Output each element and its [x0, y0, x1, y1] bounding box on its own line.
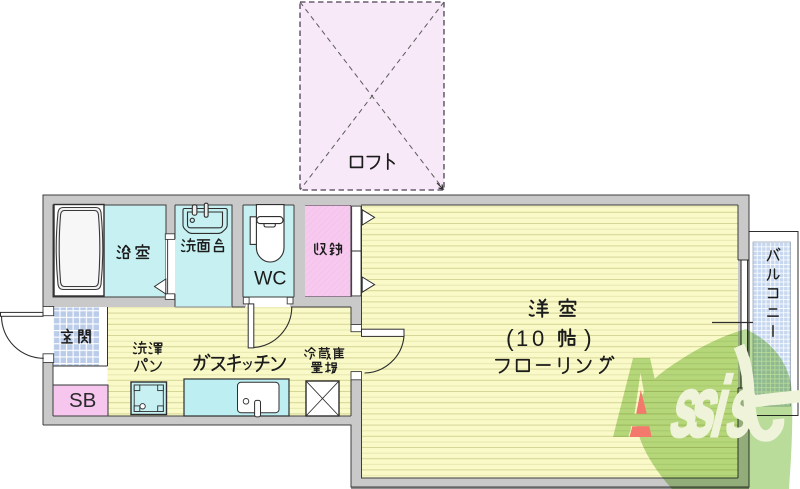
svg-text:WC: WC	[254, 268, 287, 290]
svg-text:0: 0	[532, 326, 544, 351]
svg-text:1: 1	[516, 326, 528, 351]
svg-text:(: (	[506, 325, 514, 351]
svg-text:): )	[584, 325, 592, 351]
svg-text:SB: SB	[69, 389, 96, 412]
